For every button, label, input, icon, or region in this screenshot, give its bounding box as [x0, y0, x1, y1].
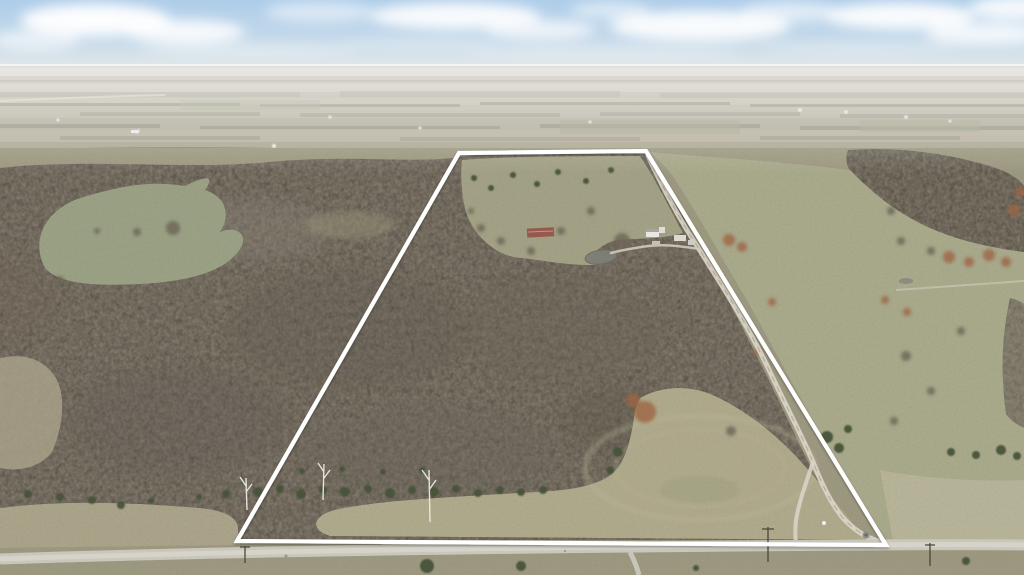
barn-red-roof	[527, 227, 554, 237]
verge-left-bottom	[0, 503, 240, 548]
farmhouse-roof	[646, 229, 659, 232]
mailbox	[822, 521, 826, 525]
shed-2	[652, 241, 660, 246]
grass-bottom-right	[880, 470, 1024, 542]
aerial-photo-canvas	[0, 0, 1024, 575]
shed	[674, 235, 686, 241]
shed-3	[688, 240, 694, 245]
farmhouse-wing	[659, 227, 665, 233]
horizon-haze	[0, 64, 1024, 174]
pond-small	[899, 278, 913, 284]
road-patch	[285, 555, 288, 558]
round-bale-center	[865, 534, 868, 537]
aerial-photo	[0, 0, 1024, 575]
road-patch-2	[564, 550, 566, 552]
